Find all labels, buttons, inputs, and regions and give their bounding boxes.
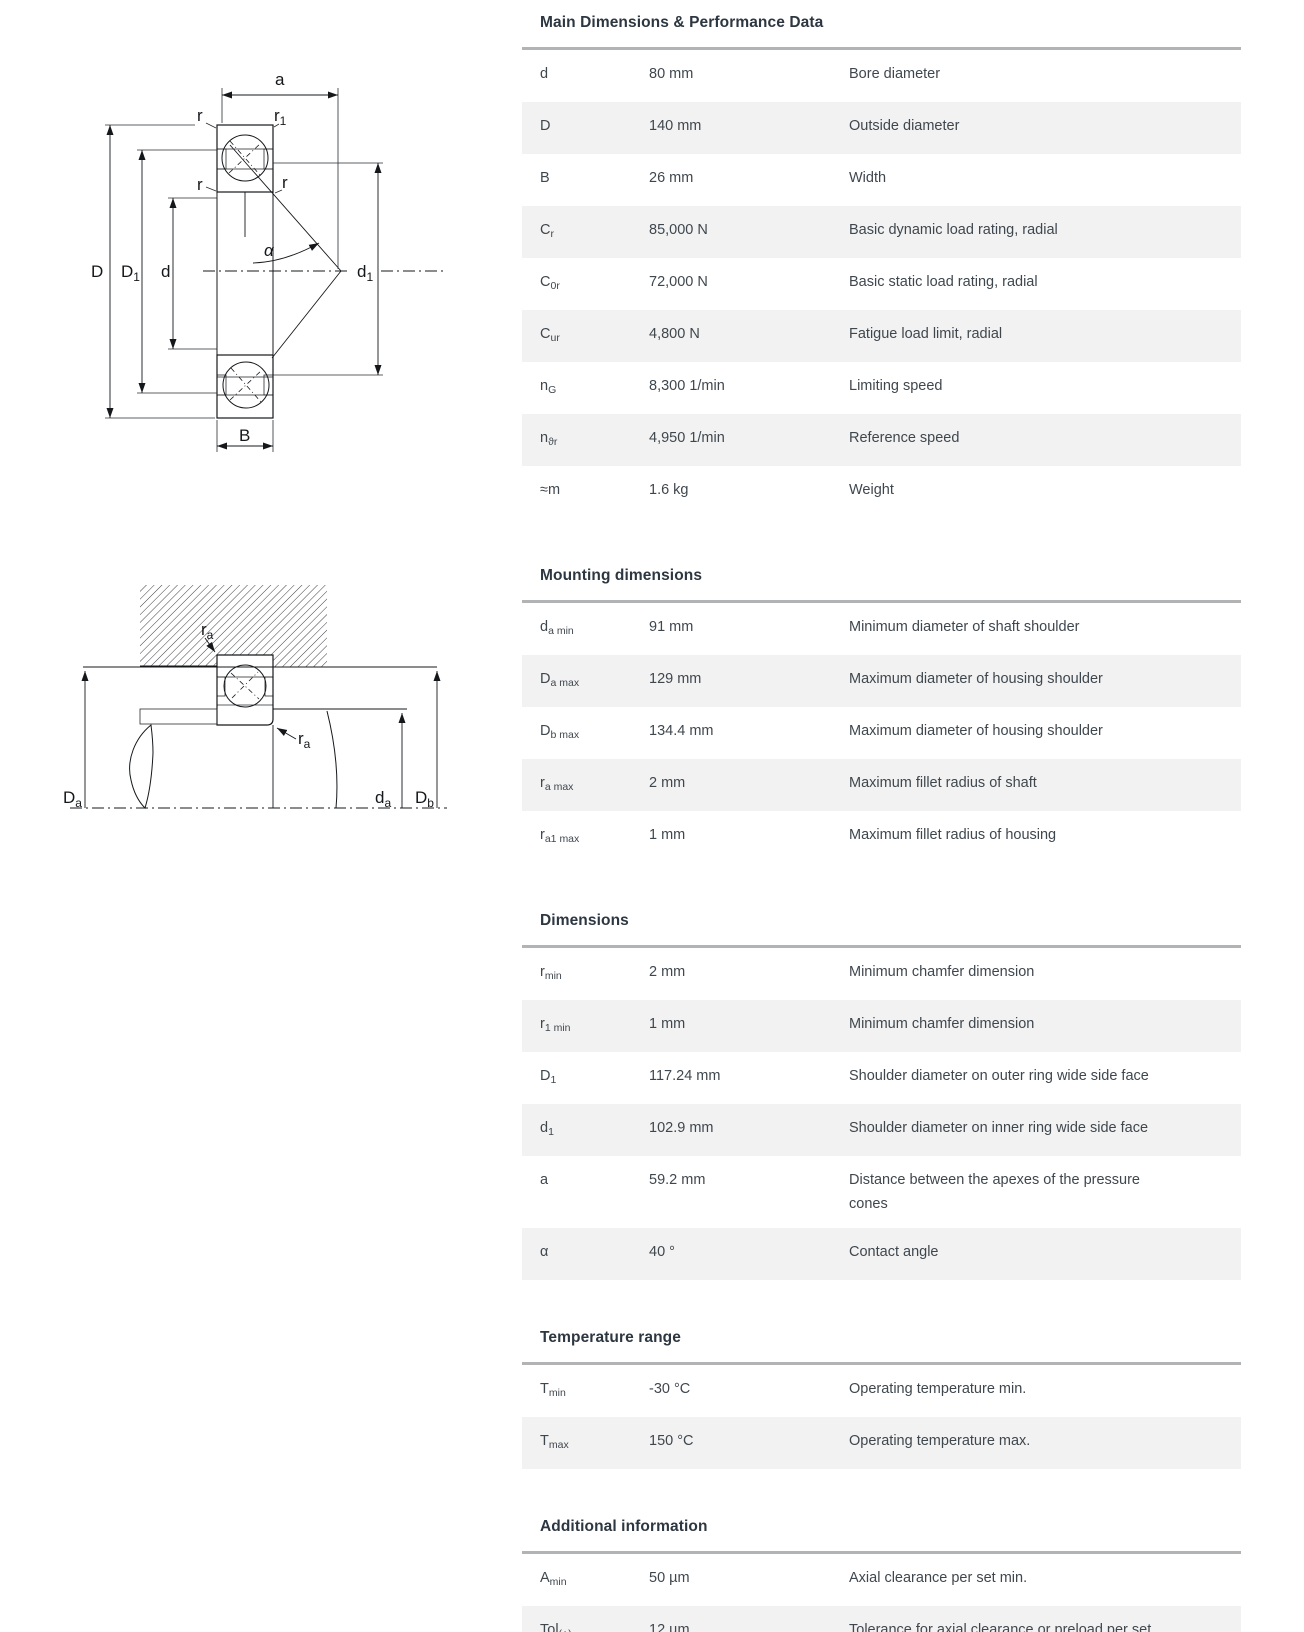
row-symbol: D1 xyxy=(522,1064,649,1092)
row-value: 1 mm xyxy=(649,1012,849,1036)
row-description: Basic static load rating, radial xyxy=(849,270,1154,294)
spec-row: nG 8,300 1/min Limiting speed xyxy=(522,362,1241,414)
dim-label-d1: d1 xyxy=(357,262,373,284)
spec-section: Temperature range Tmin -30 °C Operating … xyxy=(522,1328,1241,1469)
row-description: Fatigue load limit, radial xyxy=(849,322,1154,346)
row-symbol: B xyxy=(522,166,649,194)
row-description: Weight xyxy=(849,478,1154,502)
row-value: 4,800 N xyxy=(649,322,849,346)
symbol-subscript: 1 min xyxy=(545,1022,571,1034)
row-symbol: nG xyxy=(522,374,649,402)
row-value: 4,950 1/min xyxy=(649,426,849,450)
symbol-subscript: a1 max xyxy=(545,833,579,845)
spec-sections: Main Dimensions & Performance Data d 80 … xyxy=(522,13,1241,1632)
dim-label-a: a xyxy=(275,70,285,89)
spec-row: Da max 129 mm Maximum diameter of housin… xyxy=(522,655,1241,707)
section-rows: Amin 50 µm Axial clearance per set min. … xyxy=(522,1554,1241,1632)
row-description: Bore diameter xyxy=(849,62,1154,86)
section-title: Main Dimensions & Performance Data xyxy=(522,13,1241,33)
mounting-dimensions-diagram: ra ra Da da Db xyxy=(55,575,455,820)
symbol-subscript: G xyxy=(548,384,556,396)
symbol-subscript: a max xyxy=(550,677,579,689)
symbol-base: D xyxy=(540,118,550,134)
spec-row: ra1 max 1 mm Maximum fillet radius of ho… xyxy=(522,811,1241,863)
bearing-section xyxy=(217,655,273,725)
row-value: 50 µm xyxy=(649,1566,849,1590)
row-value: 140 mm xyxy=(649,114,849,138)
row-value: 117.24 mm xyxy=(649,1064,849,1088)
row-symbol: ra1 max xyxy=(522,823,649,851)
row-symbol: α xyxy=(522,1240,649,1268)
spec-row: a 59.2 mm Distance between the apexes of… xyxy=(522,1156,1241,1228)
spec-section: Additional information Amin 50 µm Axial … xyxy=(522,1517,1241,1632)
symbol-base: A xyxy=(540,1570,550,1586)
spec-row: nϑr 4,950 1/min Reference speed xyxy=(522,414,1241,466)
row-value: 26 mm xyxy=(649,166,849,190)
row-description: Shoulder diameter on outer ring wide sid… xyxy=(849,1064,1154,1088)
row-description: Distance between the apexes of the press… xyxy=(849,1168,1154,1216)
dim-label-D: D xyxy=(91,262,103,281)
shaft-shoulder-section xyxy=(140,709,217,724)
section-title: Temperature range xyxy=(522,1328,1241,1348)
dim-label-r: r xyxy=(197,106,203,125)
symbol-base: C xyxy=(540,274,550,290)
outer-ring-section xyxy=(217,655,273,677)
dim-label-Db: Db xyxy=(415,788,434,810)
cage-section xyxy=(217,149,226,169)
bearing-datasheet-page: α a r r1 r r D D1 d d1 xyxy=(0,0,1304,1632)
shaft-fillet-section xyxy=(130,725,153,808)
row-symbol: da min xyxy=(522,615,649,643)
symbol-subscript: (+) xyxy=(559,1628,572,1632)
bearing-top-section xyxy=(217,125,273,192)
row-symbol: rmin xyxy=(522,960,649,988)
row-value: 1 mm xyxy=(649,823,849,847)
row-value: 91 mm xyxy=(649,615,849,639)
section-title: Additional information xyxy=(522,1517,1241,1537)
row-value: 129 mm xyxy=(649,667,849,691)
row-description: Operating temperature min. xyxy=(849,1377,1154,1401)
spec-row: B 26 mm Width xyxy=(522,154,1241,206)
row-value: -30 °C xyxy=(649,1377,849,1401)
section-rows: da min 91 mm Minimum diameter of shaft s… xyxy=(522,603,1241,863)
spec-row: ≈m 1.6 kg Weight xyxy=(522,466,1241,518)
symbol-base: C xyxy=(540,222,550,238)
row-description: Limiting speed xyxy=(849,374,1154,398)
row-description: Maximum fillet radius of shaft xyxy=(849,771,1154,795)
symbol-base: T xyxy=(540,1433,549,1449)
section-rows: d 80 mm Bore diameter D 140 mm Outside d… xyxy=(522,50,1241,518)
row-value: 2 mm xyxy=(649,960,849,984)
spec-row: Db max 134.4 mm Maximum diameter of hous… xyxy=(522,707,1241,759)
row-value: 59.2 mm xyxy=(649,1168,849,1192)
spec-row: r1 min 1 mm Minimum chamfer dimension xyxy=(522,1000,1241,1052)
row-symbol: nϑr xyxy=(522,426,649,454)
cage-section xyxy=(264,149,273,169)
spec-row: d 80 mm Bore diameter xyxy=(522,50,1241,102)
spec-row: Tmax 150 °C Operating temperature max. xyxy=(522,1417,1241,1469)
symbol-subscript: 1 xyxy=(550,1074,556,1086)
row-description: Outside diameter xyxy=(849,114,1154,138)
symbol-subscript: max xyxy=(549,1439,569,1451)
row-description: Basic dynamic load rating, radial xyxy=(849,218,1154,242)
row-description: Maximum diameter of housing shoulder xyxy=(849,667,1154,691)
spec-section: Dimensions rmin 2 mm Minimum chamfer dim… xyxy=(522,911,1241,1280)
symbol-subscript: a max xyxy=(545,781,574,793)
spec-row: D1 117.24 mm Shoulder diameter on outer … xyxy=(522,1052,1241,1104)
row-symbol: d xyxy=(522,62,649,90)
row-description: Shoulder diameter on inner ring wide sid… xyxy=(849,1116,1154,1140)
spec-section: Main Dimensions & Performance Data d 80 … xyxy=(522,13,1241,518)
row-symbol: Tol(+) xyxy=(522,1618,649,1632)
symbol-subscript: r xyxy=(550,228,554,240)
spec-row: rmin 2 mm Minimum chamfer dimension xyxy=(522,948,1241,1000)
symbol-subscript: min xyxy=(549,1387,566,1399)
spec-row: d1 102.9 mm Shoulder diameter on inner r… xyxy=(522,1104,1241,1156)
dim-label-B: B xyxy=(239,426,250,445)
dim-label-D1: D1 xyxy=(121,262,140,284)
row-symbol: Amin xyxy=(522,1566,649,1594)
row-symbol: r1 min xyxy=(522,1012,649,1040)
row-symbol: Cr xyxy=(522,218,649,246)
row-symbol: C0r xyxy=(522,270,649,298)
spec-row: Amin 50 µm Axial clearance per set min. xyxy=(522,1554,1241,1606)
row-value: 150 °C xyxy=(649,1429,849,1453)
spec-row: Tol(+) 12 µm Tolerance for axial clearan… xyxy=(522,1606,1241,1632)
symbol-base: C xyxy=(540,326,550,342)
symbol-base: n xyxy=(540,430,548,446)
bearing-bottom-section xyxy=(217,355,273,418)
row-symbol: Da max xyxy=(522,667,649,695)
spec-row: Cur 4,800 N Fatigue load limit, radial xyxy=(522,310,1241,362)
row-value: 40 ° xyxy=(649,1240,849,1264)
symbol-base: B xyxy=(540,170,550,186)
section-title: Mounting dimensions xyxy=(522,566,1241,586)
dim-label-alpha: α xyxy=(264,241,275,260)
symbol-subscript: 1 xyxy=(548,1126,554,1138)
row-value: 134.4 mm xyxy=(649,719,849,743)
row-symbol: a xyxy=(522,1168,649,1196)
row-value: 85,000 N xyxy=(649,218,849,242)
section-rows: rmin 2 mm Minimum chamfer dimension r1 m… xyxy=(522,948,1241,1280)
spec-row: D 140 mm Outside diameter xyxy=(522,102,1241,154)
row-description: Maximum diameter of housing shoulder xyxy=(849,719,1154,743)
row-description: Minimum chamfer dimension xyxy=(849,960,1154,984)
symbol-base: d xyxy=(540,1120,548,1136)
shaft-outline xyxy=(327,711,337,808)
spec-row: C0r 72,000 N Basic static load rating, r… xyxy=(522,258,1241,310)
row-symbol: ra max xyxy=(522,771,649,799)
row-description: Minimum chamfer dimension xyxy=(849,1012,1154,1036)
spec-row: da min 91 mm Minimum diameter of shaft s… xyxy=(522,603,1241,655)
row-value: 2 mm xyxy=(649,771,849,795)
pressure-cone-line xyxy=(230,145,341,271)
section-title: Dimensions xyxy=(522,911,1241,931)
symbol-base: d xyxy=(540,619,548,635)
symbol-base: n xyxy=(540,378,548,394)
row-symbol: Tmin xyxy=(522,1377,649,1405)
symbol-subscript: 0r xyxy=(550,280,559,292)
row-symbol: Db max xyxy=(522,719,649,747)
section-rows: Tmin -30 °C Operating temperature min. T… xyxy=(522,1365,1241,1469)
row-value: 102.9 mm xyxy=(649,1116,849,1140)
spec-row: ra max 2 mm Maximum fillet radius of sha… xyxy=(522,759,1241,811)
row-value: 80 mm xyxy=(649,62,849,86)
pressure-cone-line xyxy=(272,271,341,358)
row-description: Operating temperature max. xyxy=(849,1429,1154,1453)
symbol-base: ≈m xyxy=(540,482,560,498)
row-value: 72,000 N xyxy=(649,270,849,294)
row-symbol: Tmax xyxy=(522,1429,649,1457)
symbol-base: Tol xyxy=(540,1622,559,1632)
row-description: Reference speed xyxy=(849,426,1154,450)
row-symbol: ≈m xyxy=(522,478,649,506)
dim-label-Da: Da xyxy=(63,788,82,810)
spec-row: Cr 85,000 N Basic dynamic load rating, r… xyxy=(522,206,1241,258)
row-symbol: d1 xyxy=(522,1116,649,1144)
dim-label-ra: ra xyxy=(298,729,311,751)
ball xyxy=(224,665,266,707)
ball xyxy=(222,135,268,181)
dim-label-r1: r1 xyxy=(274,106,287,128)
symbol-subscript: min xyxy=(550,1576,567,1588)
bearing-cross-section-diagram: α a r r1 r r D D1 d d1 xyxy=(85,52,450,452)
symbol-base: d xyxy=(540,66,548,82)
dim-label-d: d xyxy=(161,262,170,281)
row-description: Width xyxy=(849,166,1154,190)
symbol-subscript: ur xyxy=(550,332,559,344)
row-value: 1.6 kg xyxy=(649,478,849,502)
symbol-base: D xyxy=(540,723,550,739)
row-description: Minimum diameter of shaft shoulder xyxy=(849,615,1154,639)
row-value: 12 µm xyxy=(649,1618,849,1632)
inner-ring-section xyxy=(217,705,273,725)
row-description: Contact angle xyxy=(849,1240,1154,1264)
spec-row: α 40 ° Contact angle xyxy=(522,1228,1241,1280)
ball xyxy=(223,362,269,408)
symbol-base: T xyxy=(540,1381,549,1397)
symbol-subscript: a min xyxy=(548,625,574,637)
symbol-base: a xyxy=(540,1172,548,1188)
row-description: Maximum fillet radius of housing xyxy=(849,823,1154,847)
dim-label-r: r xyxy=(282,173,288,192)
row-description: Axial clearance per set min. xyxy=(849,1566,1154,1590)
symbol-base: D xyxy=(540,671,550,687)
row-description: Tolerance for axial clearance or preload… xyxy=(849,1618,1154,1632)
row-value: 8,300 1/min xyxy=(649,374,849,398)
dim-label-da: da xyxy=(375,788,391,810)
row-symbol: D xyxy=(522,114,649,142)
contact-angle-arc xyxy=(253,243,319,263)
symbol-subscript: b max xyxy=(550,729,579,741)
cage-section xyxy=(217,375,226,395)
symbol-subscript: ϑr xyxy=(548,436,557,448)
symbol-base: D xyxy=(540,1068,550,1084)
symbol-base: α xyxy=(540,1244,548,1260)
symbol-subscript: min xyxy=(545,970,562,982)
row-symbol: Cur xyxy=(522,322,649,350)
dim-label-r: r xyxy=(197,175,203,194)
spec-section: Mounting dimensions da min 91 mm Minimum… xyxy=(522,566,1241,863)
spec-row: Tmin -30 °C Operating temperature min. xyxy=(522,1365,1241,1417)
